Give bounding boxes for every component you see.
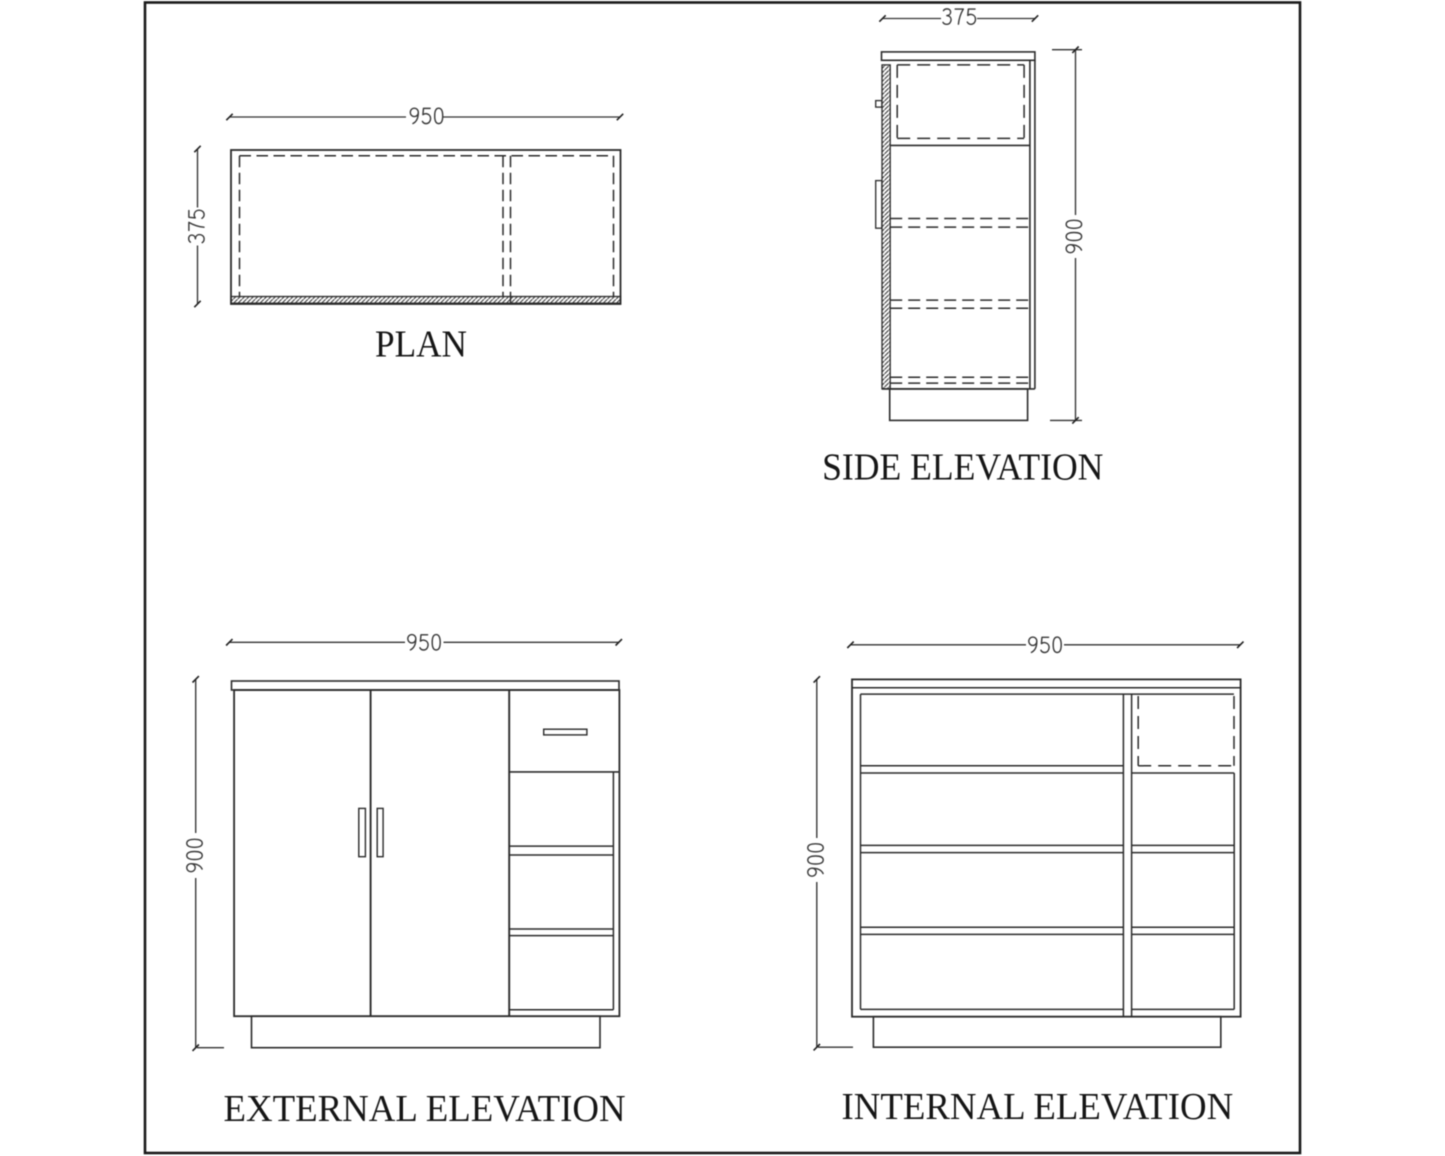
svg-text:INTERNAL ELEVATION: INTERNAL ELEVATION <box>842 1086 1234 1128</box>
svg-text:SIDE ELEVATION: SIDE ELEVATION <box>822 446 1103 488</box>
svg-text:PLAN: PLAN <box>375 324 467 366</box>
svg-text:EXTERNAL ELEVATION: EXTERNAL ELEVATION <box>224 1088 626 1130</box>
